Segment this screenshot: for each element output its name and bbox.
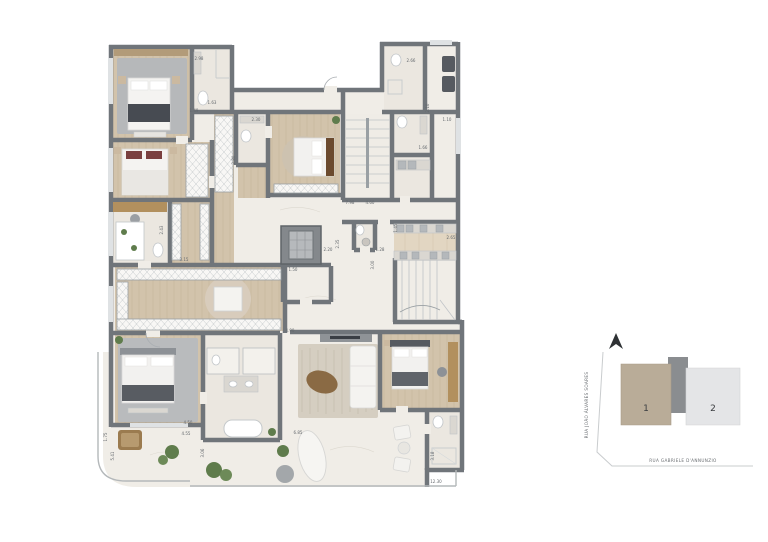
wardrobe	[117, 269, 281, 280]
dimension-label: 12.30	[430, 479, 442, 484]
unit-1-footprint	[621, 364, 671, 425]
suite2-furniture	[114, 144, 208, 197]
plant-icon	[165, 445, 179, 459]
sink	[229, 381, 237, 387]
pillow	[151, 357, 173, 366]
wardrobe	[117, 319, 281, 330]
tv-icon	[330, 336, 360, 339]
floorplan-svg: 2.981.491.632.302.802.662.101.101.667.98…	[0, 0, 768, 542]
sofa	[350, 346, 376, 408]
dimension-label: 2.66	[407, 58, 416, 63]
headboard	[390, 340, 430, 347]
bed-runner	[392, 372, 428, 386]
headboard	[326, 138, 334, 176]
wardrobe	[186, 144, 208, 197]
toilet-icon	[241, 130, 251, 142]
desk	[113, 202, 167, 212]
master-glass-door	[130, 423, 188, 427]
nightstand	[118, 76, 126, 84]
dimension-label: 4.55	[182, 431, 191, 436]
dimension-label: 7.98	[346, 200, 355, 205]
toilet-icon	[198, 91, 208, 105]
floorplan-canvas: 2.981.491.632.302.802.662.101.101.667.98…	[0, 0, 768, 542]
plant-icon	[277, 445, 289, 457]
dimension-label: 1.75	[103, 432, 108, 441]
pillow	[312, 141, 322, 156]
dimension-label: 2.20	[324, 247, 333, 252]
pillow	[146, 151, 162, 159]
sink	[450, 416, 457, 434]
bathtub-icon	[116, 222, 144, 260]
outdoor-table	[398, 442, 410, 454]
plant-icon	[206, 462, 222, 478]
pillow	[131, 81, 148, 90]
pillow	[394, 349, 409, 357]
dimension-label: 6.85	[294, 430, 303, 435]
bench	[134, 132, 166, 137]
dimension-label: 1.28	[376, 247, 385, 252]
bathtub-icon	[224, 420, 262, 437]
seat	[442, 76, 455, 92]
dimension-label: 3.18	[430, 451, 435, 460]
pillow	[150, 81, 167, 90]
dimension-label: 1.63	[208, 100, 217, 105]
toilet-icon	[153, 243, 163, 257]
dimension-label: 2.65	[447, 235, 456, 240]
round-basin	[362, 238, 370, 246]
unit-2-footprint	[686, 368, 740, 425]
toilet-icon	[433, 416, 443, 428]
dimension-label: 2.10	[425, 103, 430, 112]
toilet-icon	[212, 355, 220, 365]
pouf	[276, 465, 294, 483]
toilet-icon	[397, 116, 407, 128]
pillow	[126, 151, 142, 159]
wardrobe	[274, 184, 338, 193]
outdoor-chair	[393, 425, 411, 441]
toilet-icon	[356, 225, 364, 235]
plant-icon	[220, 469, 232, 481]
dimension-label: 2.35	[335, 239, 340, 248]
plant-icon	[268, 428, 276, 436]
dimension-label: 2.98	[195, 56, 204, 61]
wardrobe	[117, 282, 128, 320]
dimension-label: 4.60	[366, 200, 375, 205]
plant-icon	[158, 455, 168, 465]
bed-runner	[122, 385, 174, 401]
closet-island	[214, 287, 242, 311]
key-plan: 1 2 RUA JOÃO ÁLVARES SOARES RUA GABRIELE…	[584, 333, 753, 466]
street-label-bottom: RUA GABRIELE D'ANNUNZIO	[649, 458, 717, 463]
pillow	[412, 349, 427, 357]
dimension-label: 4.90	[286, 328, 295, 333]
pillow	[125, 357, 147, 366]
bed-runner	[128, 104, 170, 122]
dimension-label: 1.45	[393, 223, 398, 232]
washer-icon	[398, 161, 406, 169]
dimension-label: 1.49	[190, 108, 199, 113]
headboard	[120, 348, 176, 355]
shower-cubicle	[243, 348, 275, 374]
dimension-label: 1.10	[443, 117, 452, 122]
corridor2-floor	[238, 167, 266, 198]
nightstand	[384, 340, 390, 346]
dimension-label: 2.80	[231, 155, 236, 164]
dimension-label: 2.30	[252, 117, 261, 122]
pillow	[312, 159, 322, 174]
north-arrow-icon	[609, 333, 623, 349]
desk	[448, 342, 458, 402]
unit-1-label: 1	[643, 404, 649, 414]
shelf	[114, 49, 188, 56]
maid-bath-floor	[384, 44, 423, 110]
dimension-label: 3.06	[200, 448, 205, 457]
outdoor-chair	[393, 457, 411, 473]
dimension-label: 1.50	[289, 267, 298, 272]
sink	[245, 381, 253, 387]
dimension-label: 3.00	[370, 260, 375, 269]
dimension-label: 4.50	[184, 420, 193, 425]
bench	[128, 408, 168, 413]
toilet-icon	[391, 54, 401, 66]
entry-door-gap	[324, 86, 337, 94]
dryer-icon	[408, 161, 416, 169]
plant-icon	[332, 116, 340, 124]
stair-rail	[366, 118, 369, 188]
duvet	[122, 170, 168, 195]
sink	[420, 116, 427, 134]
dimension-label: 2.43	[159, 225, 164, 234]
seat	[442, 56, 455, 72]
dimension-label: 1.66	[419, 145, 428, 150]
dimension-label: 5.41	[110, 451, 115, 460]
nightstand	[172, 76, 180, 84]
street-label-left: RUA JOÃO ÁLVARES SOARES	[584, 372, 589, 439]
plant-icon	[115, 336, 123, 344]
elevator	[289, 231, 313, 259]
unit-2-label: 2	[710, 404, 716, 414]
chair	[437, 367, 447, 377]
dimension-label: 3.15	[180, 257, 189, 262]
